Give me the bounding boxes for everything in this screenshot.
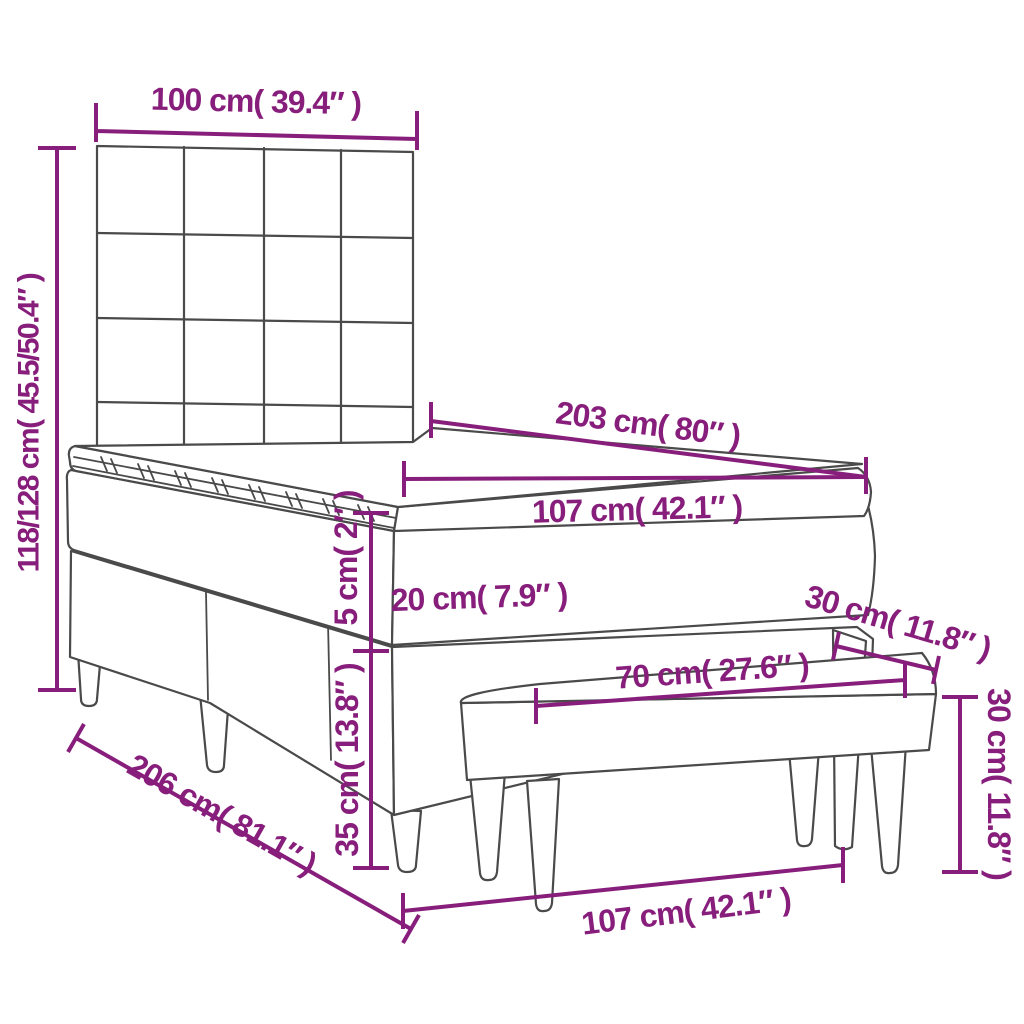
- dim-headboard-width: 100 cm( 39.4″ ): [96, 81, 417, 150]
- dim-mattress-height: 20 cm( 7.9″ ): [390, 576, 568, 618]
- headboard-width-label: 100 cm( 39.4″ ): [151, 81, 362, 122]
- base-height-label: 35 cm( 13.8″ ): [329, 663, 365, 857]
- mattress-width-label: 107 cm( 42.1″ ): [531, 488, 742, 529]
- dimension-diagram: 100 cm( 39.4″ ) 118/128 cm( 45.5/50.4″ )…: [0, 0, 1024, 1024]
- bed-leg-corner: [391, 810, 421, 872]
- topper-height-label: 5 cm( 2″ ): [328, 490, 364, 626]
- mattress-height-label: 20 cm( 7.9″ ): [390, 576, 568, 618]
- dim-bench-height: 30 cm( 11.8″ ): [942, 688, 1017, 880]
- headboard: [97, 146, 413, 455]
- dim-overall-height: 118/128 cm( 45.5/50.4″ ): [13, 148, 77, 690]
- bench-height-label: 30 cm( 11.8″ ): [981, 688, 1017, 880]
- dim-bed-floor-width: 107 cm( 42.1″ ): [403, 847, 843, 942]
- bench-drawing: [461, 653, 936, 911]
- diagram-canvas: 100 cm( 39.4″ ) 118/128 cm( 45.5/50.4″ )…: [0, 0, 1024, 1024]
- overall-height-label: 118/128 cm( 45.5/50.4″ ): [13, 273, 46, 572]
